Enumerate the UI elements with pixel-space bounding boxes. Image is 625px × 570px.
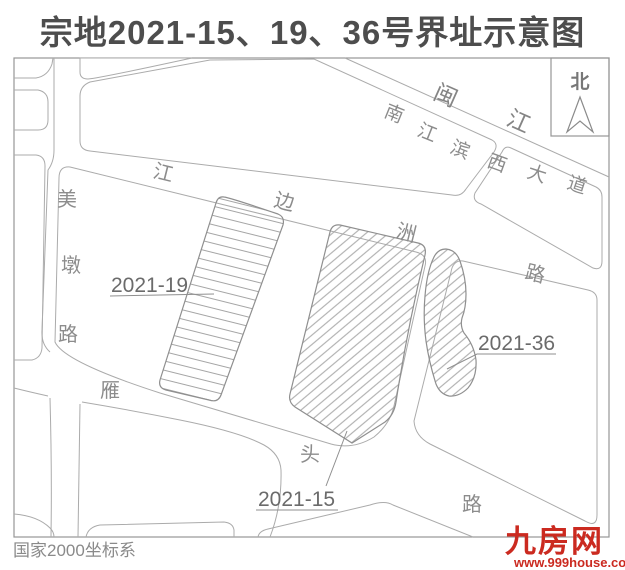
- parcel-label-2021-19: 2021-19: [111, 274, 188, 297]
- road-label-char: 头: [300, 443, 320, 466]
- river-label-char: 闽: [430, 79, 462, 112]
- road-label-char: 墩: [61, 254, 81, 277]
- road-label-char: 雁: [100, 380, 120, 402]
- north-label: 北: [570, 71, 589, 93]
- block-outline: [14, 155, 45, 360]
- meidun-road-south-edge: [78, 404, 80, 537]
- watermark-logo: 九房网: [505, 524, 604, 559]
- yantou-road-edge: [14, 388, 48, 396]
- map-canvas: 北 闽 江 南 江 滨 西 大 道 江 边 洲 路 美 墩 路 雁 头 路 20…: [0, 0, 625, 570]
- road-label-char: 美: [57, 188, 77, 211]
- road-label-char: 路: [58, 323, 78, 346]
- parcel-label-2021-15: 2021-15: [258, 488, 335, 511]
- block-outline: [14, 90, 48, 130]
- parcel-boundary-map-page: 宗地2021-15、19、36号界址示意图: [0, 0, 625, 570]
- parcel-label-2021-36: 2021-36: [478, 332, 555, 355]
- watermark-url: www.999house.com: [513, 555, 625, 570]
- yantou-road-edge: [82, 402, 281, 537]
- road-label-char: 路: [462, 493, 482, 516]
- block-edge: [14, 514, 54, 537]
- block-edge: [14, 58, 53, 78]
- north-arrow-icon: [567, 97, 593, 132]
- river-label-char: 江: [503, 105, 535, 138]
- block-edge: [86, 522, 234, 537]
- road-label-char: 江: [151, 160, 176, 187]
- road-label-char: 边: [272, 189, 297, 216]
- meidun-road-south-edge: [50, 398, 51, 537]
- coordinate-system-note: 国家2000坐标系: [13, 541, 136, 560]
